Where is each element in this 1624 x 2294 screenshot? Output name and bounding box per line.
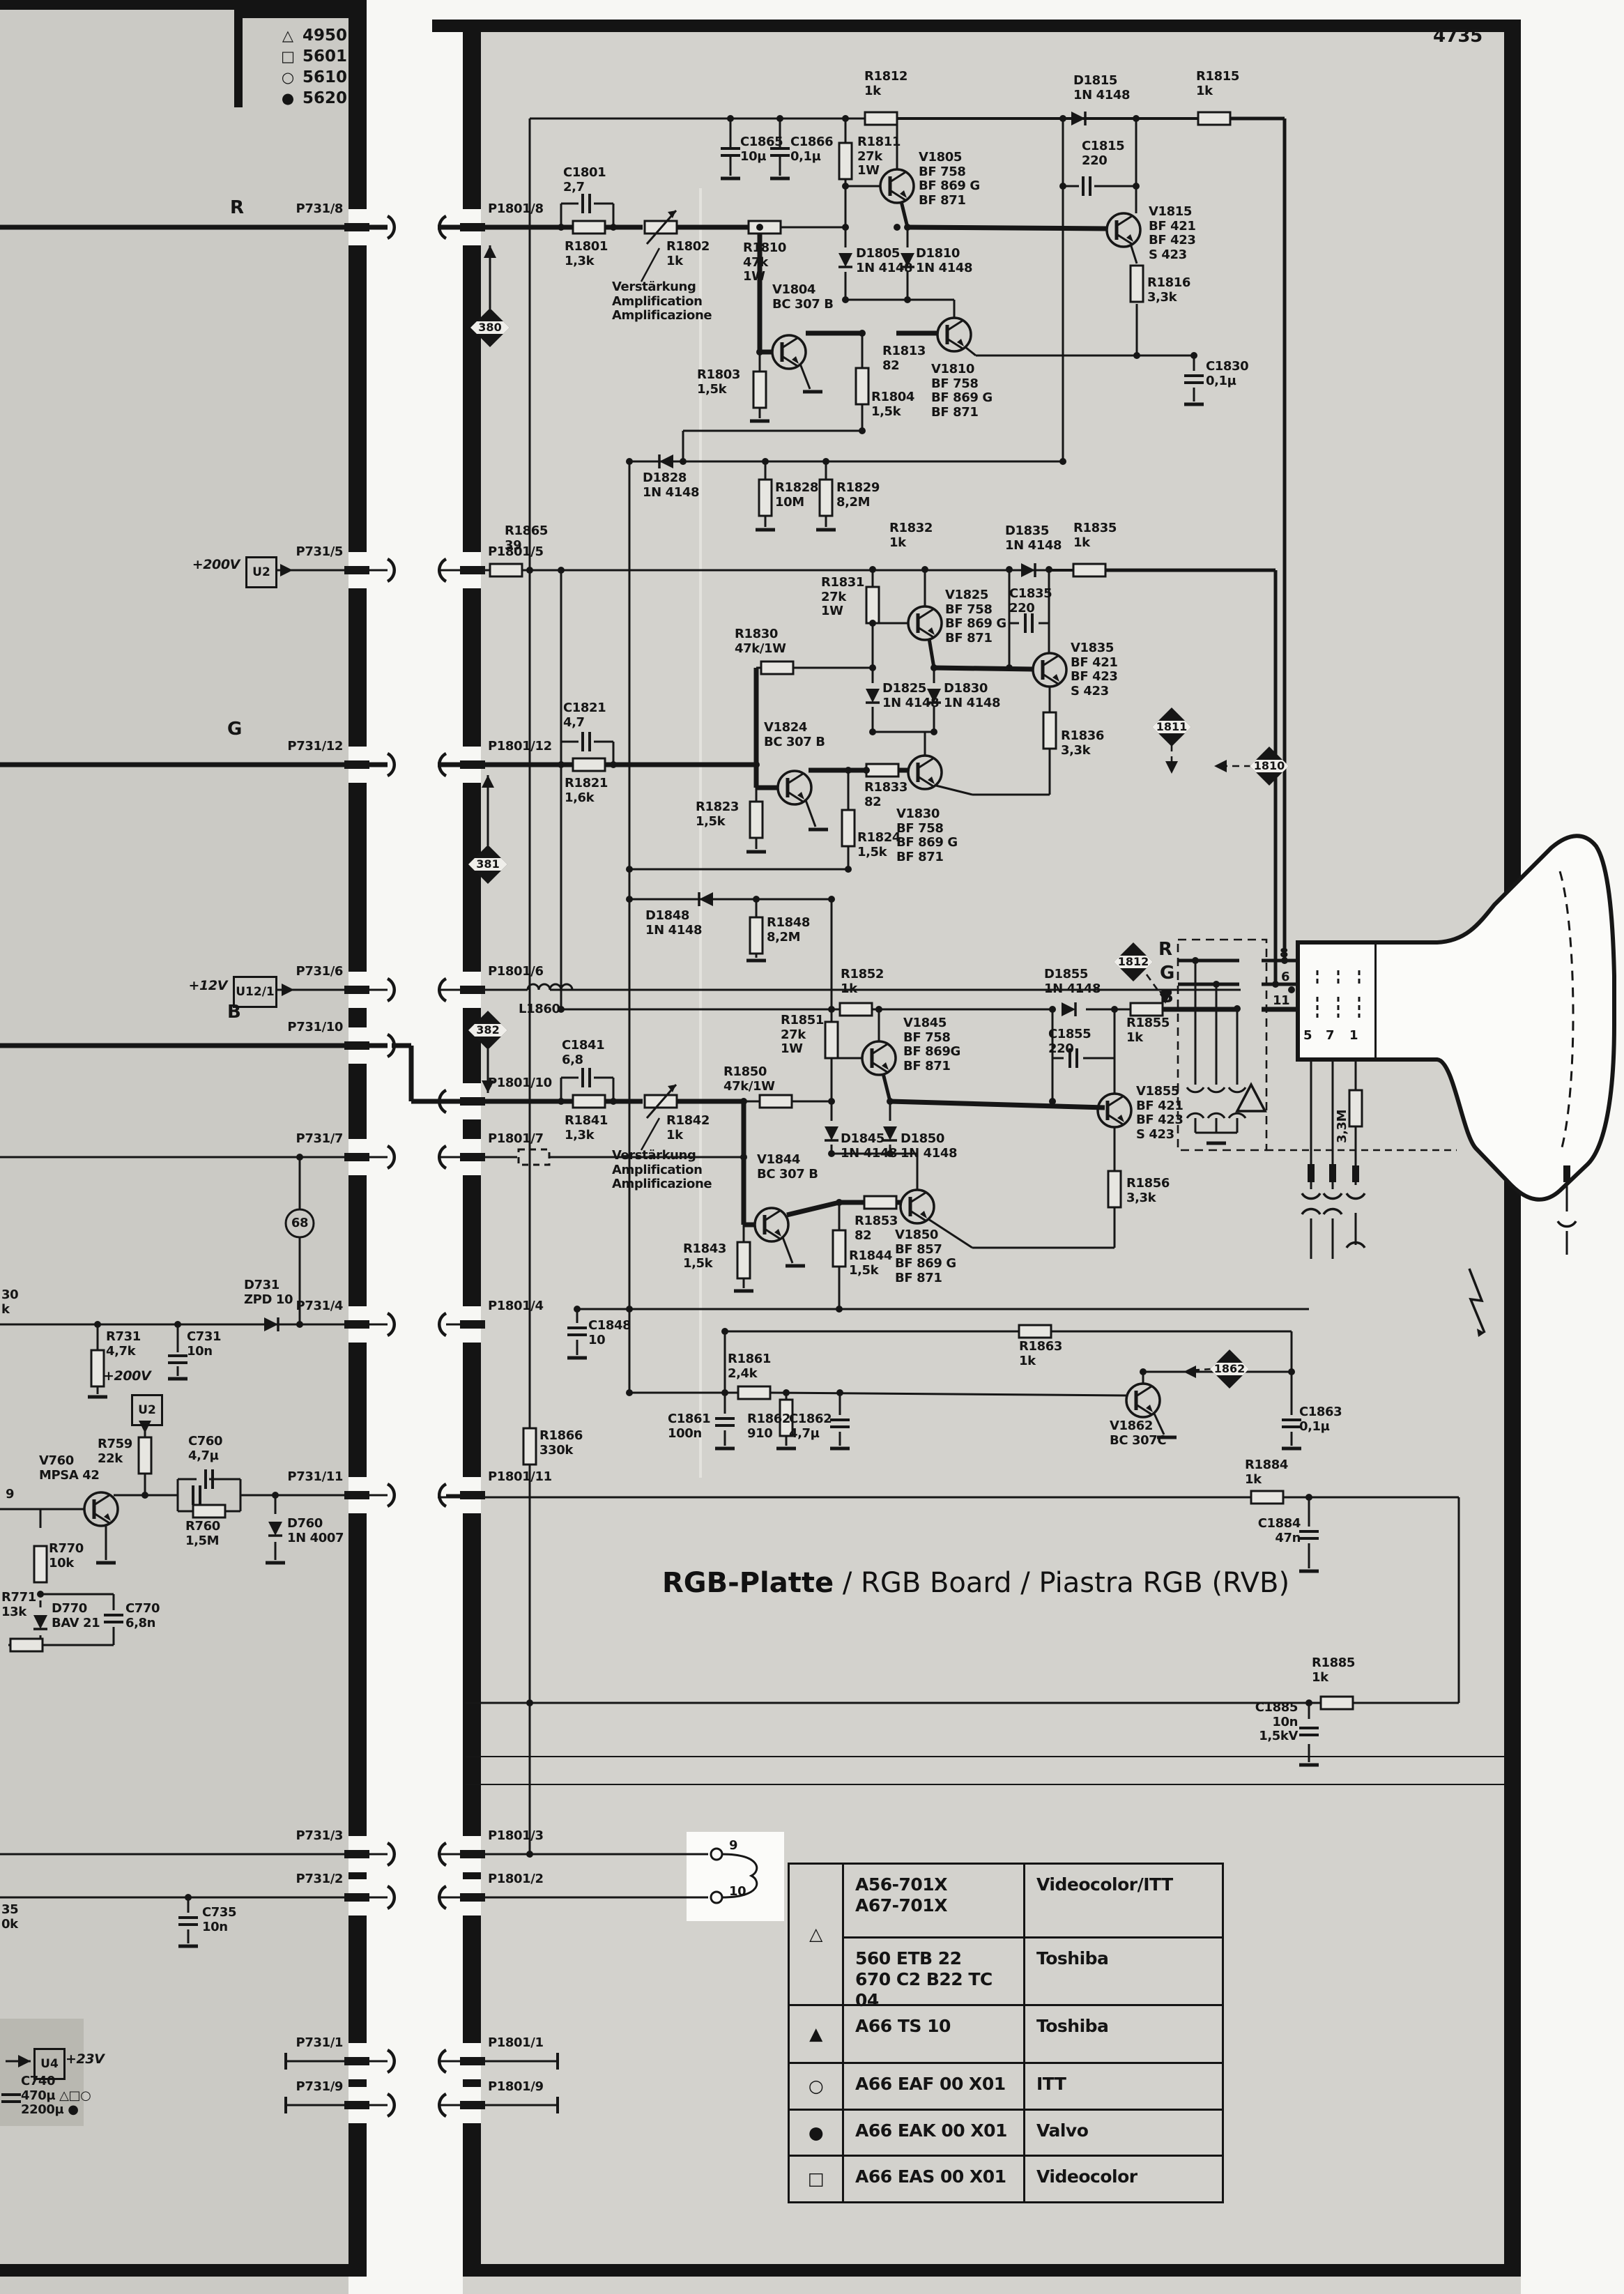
table-maker-3: ITT [1023,2062,1222,2109]
label-R1823: R1823 1,5k [696,800,739,829]
connector-P731/7: P731/7 [296,1132,343,1147]
label-V760: V760 MPSA 42 [39,1454,100,1483]
label-V1862: V1862 BC 307C [1110,1419,1166,1448]
label-R1853: R1853 82 [855,1214,898,1243]
pin-pin-8: 8 [1280,947,1288,961]
connector-P1801/5: P1801/5 [488,545,544,560]
legend-code: 5610 [302,67,347,88]
label-V1824: V1824 BC 307 B [764,721,825,749]
legend-symbol: ● [279,88,297,109]
label-C735: C735 10n [202,1906,236,1934]
label-R730-partial: 30 k [1,1288,18,1317]
label-V1855: V1855 BF 421 BF 423 S 423 [1136,1085,1183,1142]
label-R1842: R1842 1k [666,1114,710,1142]
connector-P731/8: P731/8 [296,202,343,217]
net-label-conn-g: G [1160,966,1174,981]
wire-bubble-68: 68 [291,1216,308,1231]
label-D770: D770 BAV 21 [52,1602,100,1630]
label-C1801: C1801 2,7 [563,166,606,194]
pin-pin-9: 9 [729,1839,737,1853]
label-D1810: D1810 1N 4148 [916,247,972,275]
power-box-U2-0: U2 [245,556,277,588]
label-C740: C740 470µ △□○ 2200µ ● [21,2074,91,2118]
label-V1810: V1810 BF 758 BF 869 G BF 871 [931,362,993,420]
label-V1825: V1825 BF 758 BF 869 G BF 871 [945,588,1006,645]
label-R1816: R1816 3,3k [1147,276,1190,305]
label-R1831: R1831 27k 1W [821,576,864,619]
label-R1836: R1836 3,3k [1061,729,1104,758]
legend-symbol: □ [279,46,297,67]
connector-P731/9: P731/9 [296,2080,343,2095]
label-C1884: C1884 47n [1258,1517,1301,1545]
legend-code: 4950 [302,25,347,46]
label-D1845: D1845 1N 4148 [841,1132,897,1161]
label-C1862: C1862 4,7µ [789,1412,832,1441]
label-R1841: R1841 1,3k [565,1114,608,1142]
label-C1821: C1821 4,7 [563,701,606,730]
connector-P731/11: P731/11 [287,1470,343,1485]
label-C1863: C1863 0,1µ [1299,1405,1342,1434]
connector-P1801/1: P1801/1 [488,2036,544,2051]
table-maker-0: Videocolor/ITT [1023,1865,1222,1936]
diamond-marker-1862: 1862 [1214,1363,1246,1375]
diamond-marker-381: 381 [476,859,499,870]
voltage-+12V-1: +12V [189,979,227,993]
label-R1835: R1835 1k [1073,521,1117,550]
label-D1848: D1848 1N 4148 [645,909,702,938]
label-C1835: C1835 220 [1009,587,1052,615]
table-symbol-0: △ [790,1865,842,2004]
net-label-conn-r: R [1158,942,1172,957]
label-R1851: R1851 27k 1W [781,1014,824,1057]
legend-symbol: ○ [279,67,297,88]
legend-code: 5601 [302,46,347,67]
label-C1841: C1841 6,8 [562,1039,604,1067]
connector-P1801/3: P1801/3 [488,1829,544,1844]
table-symbol-3: ○ [790,2062,842,2109]
label-V1850: V1850 BF 857 BF 869 G BF 871 [895,1228,956,1285]
pin-pin-1: 1 [1349,1029,1358,1043]
voltage-+200V-0: +200V [192,558,240,572]
label-R1884: R1884 1k [1245,1458,1288,1487]
legend-symbol: △ [279,25,297,46]
power-box-U12/1-1: U12/1 [233,976,277,1008]
label-C1865: C1865 10µ [740,135,783,164]
connector-P731/4: P731/4 [296,1299,343,1314]
label-D1805: D1805 1N 4148 [856,247,912,275]
label-R1833: R1833 82 [864,781,907,809]
label-V1804: V1804 BC 307 B [772,283,834,312]
label-V1805: V1805 BF 758 BF 869 G BF 871 [919,151,980,208]
label-R1856: R1856 3,3k [1126,1177,1170,1205]
label-R760: R760 1,5M [185,1520,220,1548]
label-R1861: R1861 2,4k [728,1352,771,1381]
label-V1835: V1835 BF 421 BF 423 S 423 [1071,641,1117,698]
connector-P1801/6: P1801/6 [488,965,544,979]
legend-code: 5620 [302,88,347,109]
label-C1848: C1848 10 [588,1319,631,1347]
connector-P731/6: P731/6 [296,965,343,979]
table-maker-5: Videocolor [1023,2155,1222,2201]
label-R1855: R1855 1k [1126,1016,1170,1045]
label-R735-partial: 35 0k [1,1903,18,1932]
label-D1825: D1825 1N 4148 [882,682,939,710]
connector-P1801/11: P1801/11 [488,1470,552,1485]
legend-item-4950: △4950 [279,25,347,46]
connector-P1801/10: P1801/10 [488,1076,552,1091]
table-models-5: A66 EAS 00 X01 [842,2155,1023,2201]
corner-code: 4735 [1433,29,1483,44]
net-label-net-r: R [230,201,244,215]
connector-P731/5: P731/5 [296,545,343,560]
connector-P731/12: P731/12 [287,740,343,754]
label-wire-tag-9: 9 [6,1488,14,1502]
label-R731: R731 4,7k [106,1330,141,1359]
label-R1832: R1832 1k [889,521,933,550]
diamond-marker-382: 382 [476,1025,499,1036]
connector-P1801/2: P1801/2 [488,1872,544,1887]
table-maker-1: Toshiba [1023,1936,1222,2004]
diamond-marker-380: 380 [478,322,501,333]
label-C731: C731 10n [187,1330,221,1359]
compatibility-table: △A56-701X A67-701XVideocolor/ITT560 ETB … [788,1863,1224,2203]
table-symbol-2: ▲ [790,2004,842,2062]
label-D1850: D1850 1N 4148 [901,1132,957,1161]
label-R1804: R1804 1,5k [871,390,914,419]
board-title: RGB-Platte / RGB Board / Piastra RGB (RV… [662,1567,1289,1599]
label-R770: R770 10k [49,1542,84,1570]
label-C1885: C1885 10n 1,5kV [1255,1701,1298,1744]
connector-P1801/12: P1801/12 [488,740,552,754]
label-C760: C760 4,7µ [188,1435,222,1463]
label-D1830: D1830 1N 4148 [944,682,1000,710]
label-R1811: R1811 27k 1W [857,135,901,178]
label-C1855: C1855 220 [1048,1027,1091,1056]
label-D1815: D1815 1N 4148 [1073,74,1130,102]
net-label-conn-b: B [1160,990,1173,1004]
label-R1844: R1844 1,5k [849,1249,892,1278]
label-R1813: R1813 82 [882,344,926,373]
table-models-4: A66 EAK 00 X01 [842,2109,1023,2155]
label-C1861: C1861 100n [668,1412,710,1441]
diamond-marker-1812: 1812 [1118,956,1149,968]
label-R1815: R1815 1k [1196,70,1239,98]
board-title-rest: / RGB Board / Piastra RGB (RVB) [834,1567,1289,1599]
label-R1850: R1850 47k/1W [723,1065,775,1094]
label-R1801: R1801 1,3k [565,240,608,268]
label-D760: D760 1N 4007 [287,1517,344,1545]
connector-P1801/8: P1801/8 [488,202,544,217]
label-R1803: R1803 1,5k [697,368,740,397]
label-R1852: R1852 1k [841,968,884,996]
pin-pin-11: 11 [1273,994,1289,1009]
label-C770: C770 6,8n [125,1602,160,1630]
diamond-marker-1810: 1810 [1254,760,1285,772]
voltage-+200V-2: +200V [103,1369,151,1384]
label-R1812: R1812 1k [864,70,907,98]
legend: △4950□5601○5610●5620 [279,25,347,109]
text-gain-b: Verstärkung Amplification Amplificazione [612,1149,712,1192]
label-D1835: D1835 1N 4148 [1005,524,1062,553]
label-R1829: R1829 8,2M [836,481,880,510]
table-models-1: 560 ETB 22 670 C2 B22 TC 04 [842,1936,1023,2004]
connector-P731/3: P731/3 [296,1829,343,1844]
label-C1815: C1815 220 [1082,139,1124,168]
label-R1862: R1862 910 [747,1412,790,1441]
label-R1821: R1821 1,6k [565,777,608,805]
power-box-U2-2: U2 [131,1394,163,1426]
table-symbol-5: □ [790,2155,842,2201]
diamond-marker-1811: 1811 [1156,721,1188,733]
legend-item-5601: □5601 [279,46,347,67]
pin-pin-7: 7 [1326,1029,1334,1043]
label-D731: D731 ZPD 10 [244,1278,293,1307]
connector-P1801/4: P1801/4 [488,1299,544,1314]
table-maker-2: Toshiba [1023,2004,1222,2062]
pin-pin-5: 5 [1303,1029,1312,1043]
legend-item-5620: ●5620 [279,88,347,109]
label-L1860: L1860 [519,1002,560,1017]
schematic-page: { "page": { "corner_code": "4735", "titl… [0,0,1624,2294]
label-R1802: R1802 1k [666,240,710,268]
pin-pin-6: 6 [1281,970,1289,985]
label-R-focus: 3,3M [1335,1110,1350,1143]
table-models-0: A56-701X A67-701X [842,1865,1023,1936]
connector-P1801/7: P1801/7 [488,1132,544,1147]
connector-P731/2: P731/2 [296,1872,343,1887]
label-V1815: V1815 BF 421 BF 423 S 423 [1149,205,1195,262]
label-V1845: V1845 BF 758 BF 869G BF 871 [903,1016,960,1073]
label-C1830: C1830 0,1µ [1206,360,1248,388]
label-V1830: V1830 BF 758 BF 869 G BF 871 [896,807,958,864]
label-R1885: R1885 1k [1312,1656,1355,1685]
label-D1855: D1855 1N 4148 [1044,968,1101,996]
label-R1863: R1863 1k [1019,1340,1062,1368]
pin-pin-10: 10 [729,1885,746,1899]
label-C1866: C1866 0,1µ [790,135,833,164]
connector-P731/10: P731/10 [287,1020,343,1035]
net-label-net-g: G [227,722,242,737]
board-title-bold: RGB-Platte [662,1567,834,1599]
voltage-+23V-3: +23V [66,2052,104,2067]
label-V1844: V1844 BC 307 B [757,1153,818,1182]
label-D1828: D1828 1N 4148 [643,471,699,500]
label-R1830: R1830 47k/1W [735,627,786,656]
connector-P1801/9: P1801/9 [488,2080,544,2095]
table-symbol-4: ● [790,2109,842,2155]
label-R1848: R1848 8,2M [767,916,810,945]
label-R1843: R1843 1,5k [683,1242,726,1271]
label-R759: R759 22k [98,1437,132,1466]
table-maker-4: Valvo [1023,2109,1222,2155]
legend-item-5610: ○5610 [279,67,347,88]
connector-P731/1: P731/1 [296,2036,343,2051]
table-models-3: A66 EAF 00 X01 [842,2062,1023,2109]
label-R1824: R1824 1,5k [857,831,901,859]
text-gain-r: Verstärkung Amplification Amplificazione [612,280,712,323]
label-R1810: R1810 47k 1W [743,241,786,284]
label-R1866: R1866 330k [539,1429,583,1458]
power-box-U4-3: U4 [33,2048,66,2080]
table-models-2: A66 TS 10 [842,2004,1023,2062]
label-R771: R771 13k [1,1591,36,1619]
label-R1828: R1828 10M [775,481,818,510]
